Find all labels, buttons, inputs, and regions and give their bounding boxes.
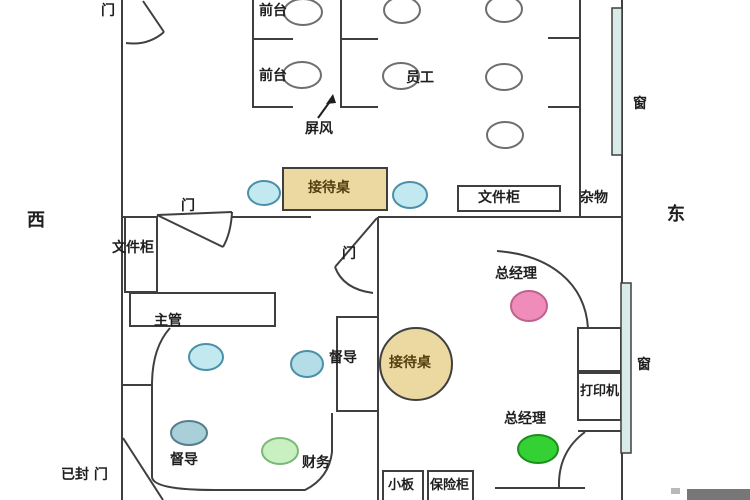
door-mid-left-swing [157, 212, 232, 247]
seat-general-manager-2 [518, 435, 558, 463]
label-door-top-left: 门 [101, 4, 115, 18]
label-finance: 财务 [302, 456, 330, 470]
seat-reception-right [393, 182, 427, 208]
sealed-door-leaf [123, 438, 163, 500]
seat-supervisor-right [291, 351, 323, 377]
desk-stubs-right [548, 38, 580, 107]
door-bottom-right-swing [495, 431, 622, 488]
label-east: 东 [667, 206, 685, 224]
label-supervisor-left: 督导 [170, 453, 198, 467]
label-reception-desk-rect: 接待桌 [308, 181, 350, 195]
label-printer: 打印机 [580, 385, 619, 398]
desk-chief-supervisor [130, 293, 275, 326]
label-file-cabinet-top: 文件柜 [478, 191, 520, 205]
seat-staff-1 [384, 0, 420, 23]
watermark-speck [671, 488, 680, 494]
seat-finance [262, 438, 298, 464]
label-door-mid-left: 门 [181, 199, 195, 213]
label-door-middle: 门 [342, 247, 356, 261]
label-west: 西 [27, 212, 45, 230]
label-front-desk-2: 前台 [259, 69, 287, 83]
seat-staff-5 [487, 122, 523, 148]
window-bottom-right [621, 283, 631, 453]
seat-staff-4 [486, 64, 522, 90]
label-general-manager-1: 总经理 [495, 267, 537, 281]
label-supervisor-right: 督导 [329, 351, 357, 365]
label-reception-desk-round: 接待桌 [389, 356, 431, 370]
label-sealed-door: 已封 门 [61, 468, 108, 482]
seat-supervisor-left [171, 421, 207, 445]
label-general-manager-2: 总经理 [504, 412, 546, 426]
seat-front-desk-2 [283, 62, 321, 88]
label-file-cabinet-left: 文件柜 [112, 241, 154, 255]
label-chief-supervisor: 主管 [154, 314, 182, 328]
label-staff: 员工 [406, 71, 434, 85]
label-safe: 保险柜 [430, 479, 469, 492]
seat-chief-supervisor [189, 344, 223, 370]
window-top-right [612, 8, 622, 155]
label-screen: 屏风 [305, 122, 333, 136]
office-floor-plan: 门 前台 前台 员工 屏风 接待桌 文件柜 杂物 窗 西 东 门 文件柜 门 总… [0, 0, 750, 500]
label-small-board: 小板 [388, 479, 414, 492]
seat-reception-left [248, 181, 280, 205]
label-sundries: 杂物 [580, 191, 608, 205]
gm-side-cabinet [578, 328, 621, 371]
screen-arrow [318, 94, 336, 118]
label-front-desk-1: 前台 [259, 4, 287, 18]
partition-screen [341, 0, 378, 108]
door-top-left-swing [126, 1, 164, 44]
seat-front-desk-1 [284, 0, 322, 25]
label-window-top: 窗 [633, 97, 647, 111]
watermark-bar [687, 489, 750, 500]
seat-general-manager-1 [511, 291, 547, 321]
label-window-bottom: 窗 [637, 358, 651, 372]
seat-staff-3 [486, 0, 522, 22]
